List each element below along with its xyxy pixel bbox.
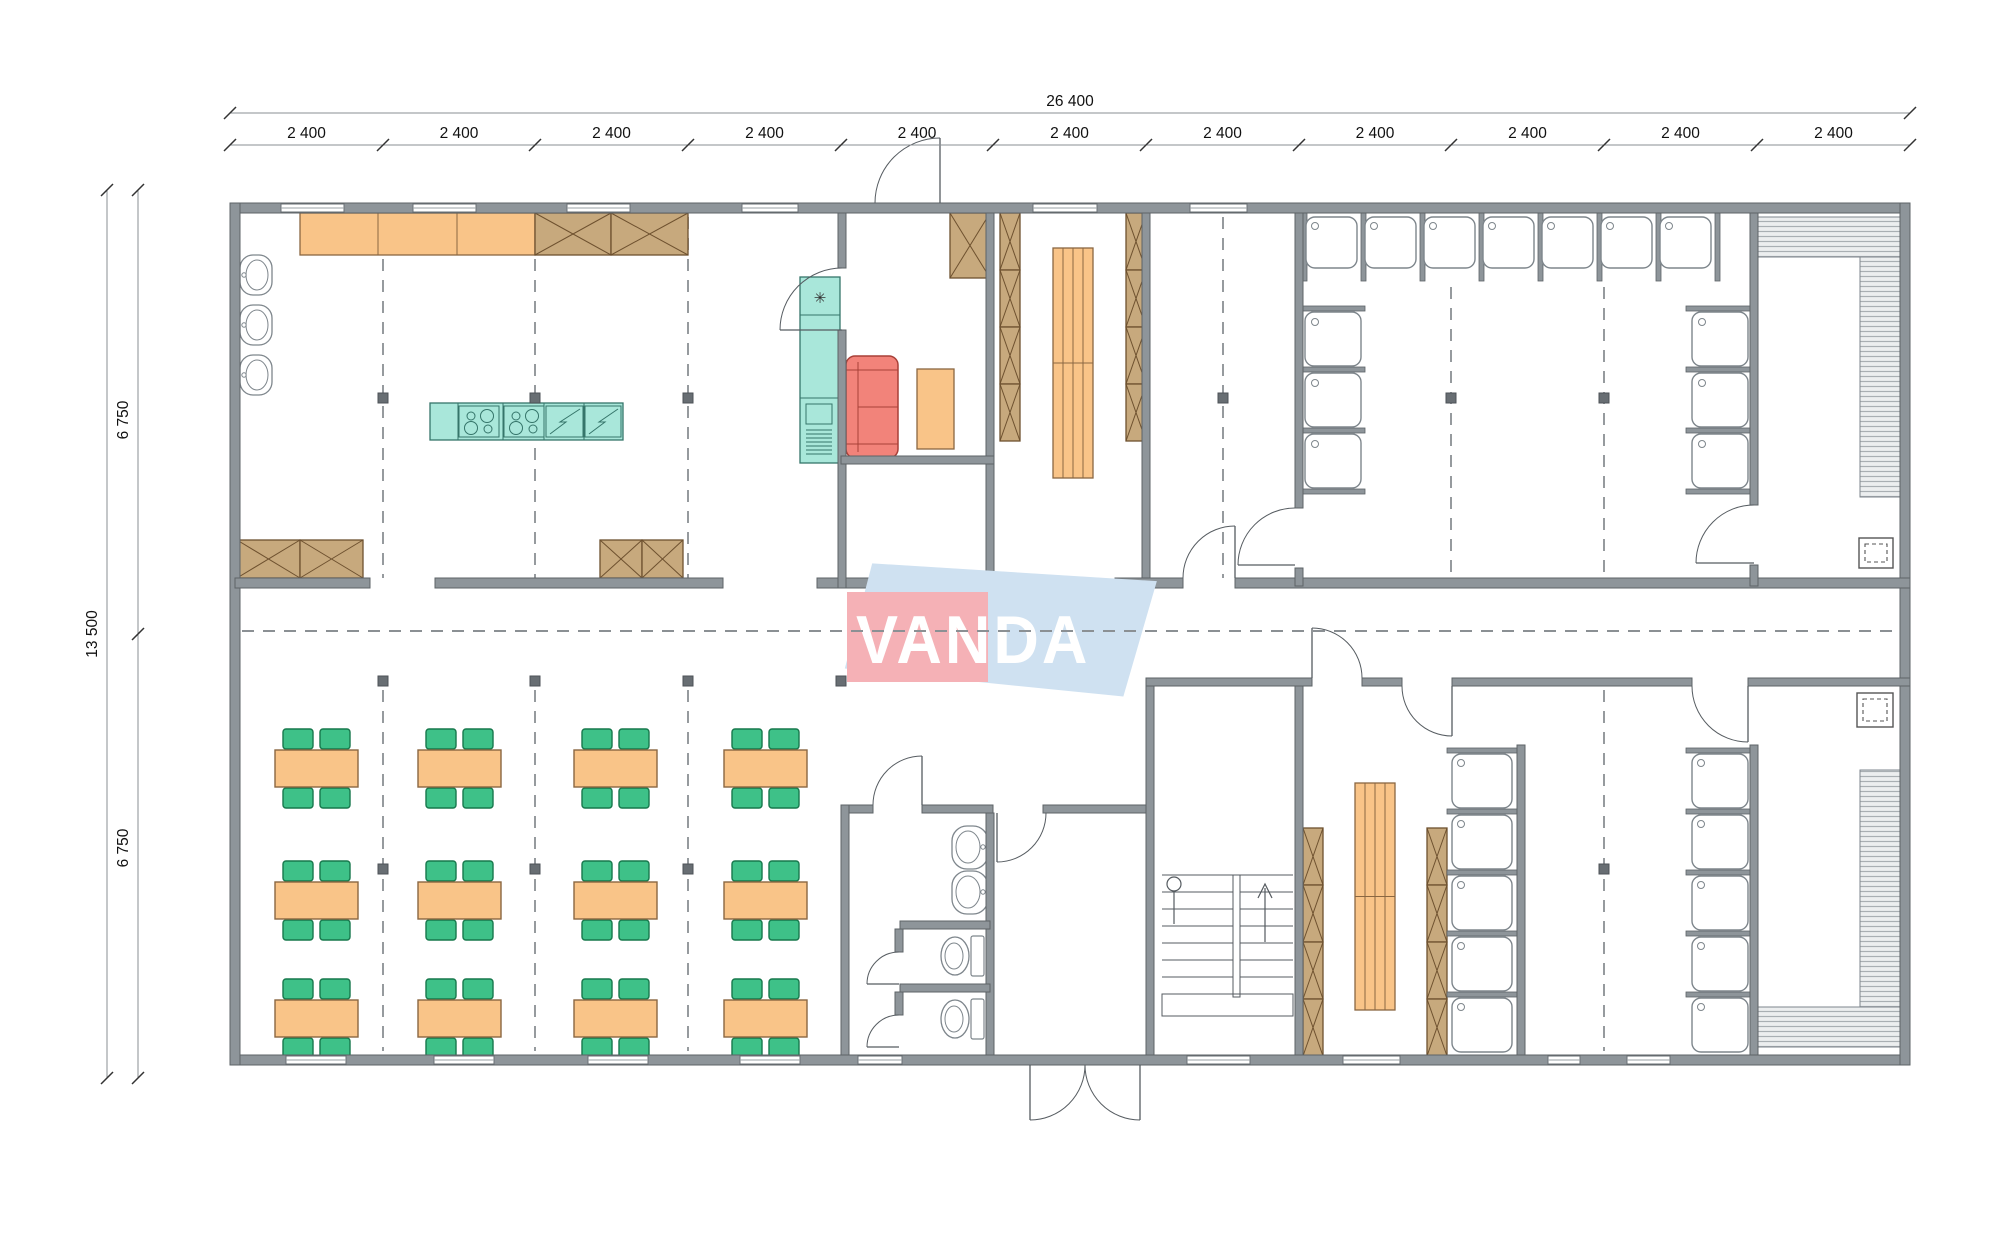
dim-segment-label: 2 400: [287, 125, 326, 142]
dim-segment-label: 2 400: [745, 125, 784, 142]
kitchen-counter: [300, 213, 535, 255]
svg-text:6 750: 6 750: [115, 400, 132, 439]
dim-segment-label: 2 400: [1050, 125, 1089, 142]
sofa: [846, 356, 898, 458]
corridor-axis-line: [242, 630, 1898, 632]
dim-segment-label: 2 400: [440, 125, 479, 142]
dim-segment-label: 2 400: [592, 125, 631, 142]
kitchen-sinks: [240, 255, 272, 395]
dim-segment-label: 2 400: [1814, 125, 1853, 142]
dim-segment-label: 2 400: [1356, 125, 1395, 142]
dim-segment-label: 2 400: [898, 125, 937, 142]
refrigerator: ✳: [800, 277, 840, 463]
dim-segment-label: 2 400: [1203, 125, 1242, 142]
lounge-table: [917, 369, 954, 449]
watermark-text: VANDA: [856, 593, 1156, 690]
svg-text:13 500: 13 500: [84, 610, 101, 658]
floor-plan-page: ✳26 4002 4002 4002 4002 4002 4002 4002 4…: [0, 0, 2000, 1235]
svg-text:6 750: 6 750: [115, 828, 132, 867]
watermark: VANDA: [840, 553, 1162, 701]
dim-segment-label: 2 400: [1508, 125, 1547, 142]
svg-text:26 400: 26 400: [1046, 93, 1094, 110]
dim-segment-label: 2 400: [1661, 125, 1700, 142]
kitchen-island: [430, 403, 623, 440]
freezer-star-icon: ✳: [814, 290, 827, 307]
lounge-cabinet: [950, 213, 990, 278]
